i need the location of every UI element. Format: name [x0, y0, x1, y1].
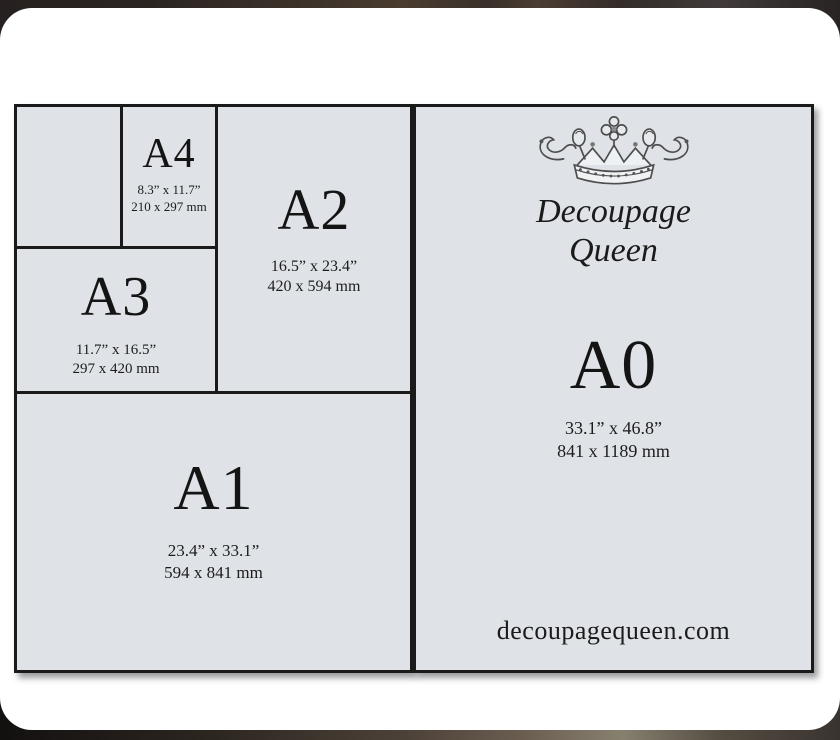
- size-block-a0: A0 33.1” x 46.8” 841 x 1189 mm: [416, 331, 811, 463]
- screen: A4 8.3” x 11.7” 210 x 297 mm A2 16.5” x …: [0, 0, 840, 740]
- paper-size-diagram-left: A4 8.3” x 11.7” 210 x 297 mm A2 16.5” x …: [14, 104, 413, 673]
- brand-block: Decoupage Queen: [416, 110, 811, 268]
- size-inches-a0: 33.1” x 46.8”: [557, 417, 670, 440]
- crown-icon: [528, 110, 700, 194]
- size-mm-a2: 420 x 594 mm: [268, 277, 361, 297]
- size-mm-a4: 210 x 297 mm: [131, 199, 206, 216]
- paper-size-cell-a4: A4 8.3” x 11.7” 210 x 297 mm: [120, 107, 215, 246]
- size-label-a0: A0: [570, 331, 658, 401]
- paper-size-cell-a0: Decoupage Queen A0 33.1” x 46.8” 841 x 1…: [413, 104, 814, 673]
- size-mm-a3: 297 x 420 mm: [72, 360, 159, 379]
- size-dimensions-a1: 23.4” x 33.1” 594 x 841 mm: [164, 540, 263, 584]
- brand-name-line1: Decoupage: [536, 195, 691, 229]
- paper-size-cell-a3: A3 11.7” x 16.5” 297 x 420 mm: [17, 246, 215, 391]
- paper-size-cell-a2: A2 16.5” x 23.4” 420 x 594 mm: [215, 107, 410, 391]
- size-mm-a0: 841 x 1189 mm: [557, 440, 670, 463]
- website-text: decoupagequeen.com: [416, 616, 811, 646]
- size-inches-a2: 16.5” x 23.4”: [268, 257, 361, 277]
- paper-size-cell-a1: A1 23.4” x 33.1” 594 x 841 mm: [17, 391, 410, 670]
- paper-size-cell-a5-empty: [17, 107, 120, 246]
- size-label-a3: A3: [81, 269, 151, 325]
- size-dimensions-a4: 8.3” x 11.7” 210 x 297 mm: [131, 182, 206, 215]
- size-inches-a4: 8.3” x 11.7”: [131, 182, 206, 199]
- size-inches-a1: 23.4” x 33.1”: [164, 540, 263, 562]
- product-card: A4 8.3” x 11.7” 210 x 297 mm A2 16.5” x …: [0, 8, 840, 730]
- size-dimensions-a3: 11.7” x 16.5” 297 x 420 mm: [72, 341, 159, 379]
- brand-name-line2: Queen: [569, 234, 658, 268]
- size-label-a4: A4: [142, 133, 195, 175]
- size-label-a1: A1: [173, 456, 253, 520]
- size-dimensions-a0: 33.1” x 46.8” 841 x 1189 mm: [557, 417, 670, 463]
- size-label-a2: A2: [278, 181, 351, 239]
- size-mm-a1: 594 x 841 mm: [164, 562, 263, 584]
- size-dimensions-a2: 16.5” x 23.4” 420 x 594 mm: [268, 257, 361, 298]
- size-inches-a3: 11.7” x 16.5”: [72, 341, 159, 360]
